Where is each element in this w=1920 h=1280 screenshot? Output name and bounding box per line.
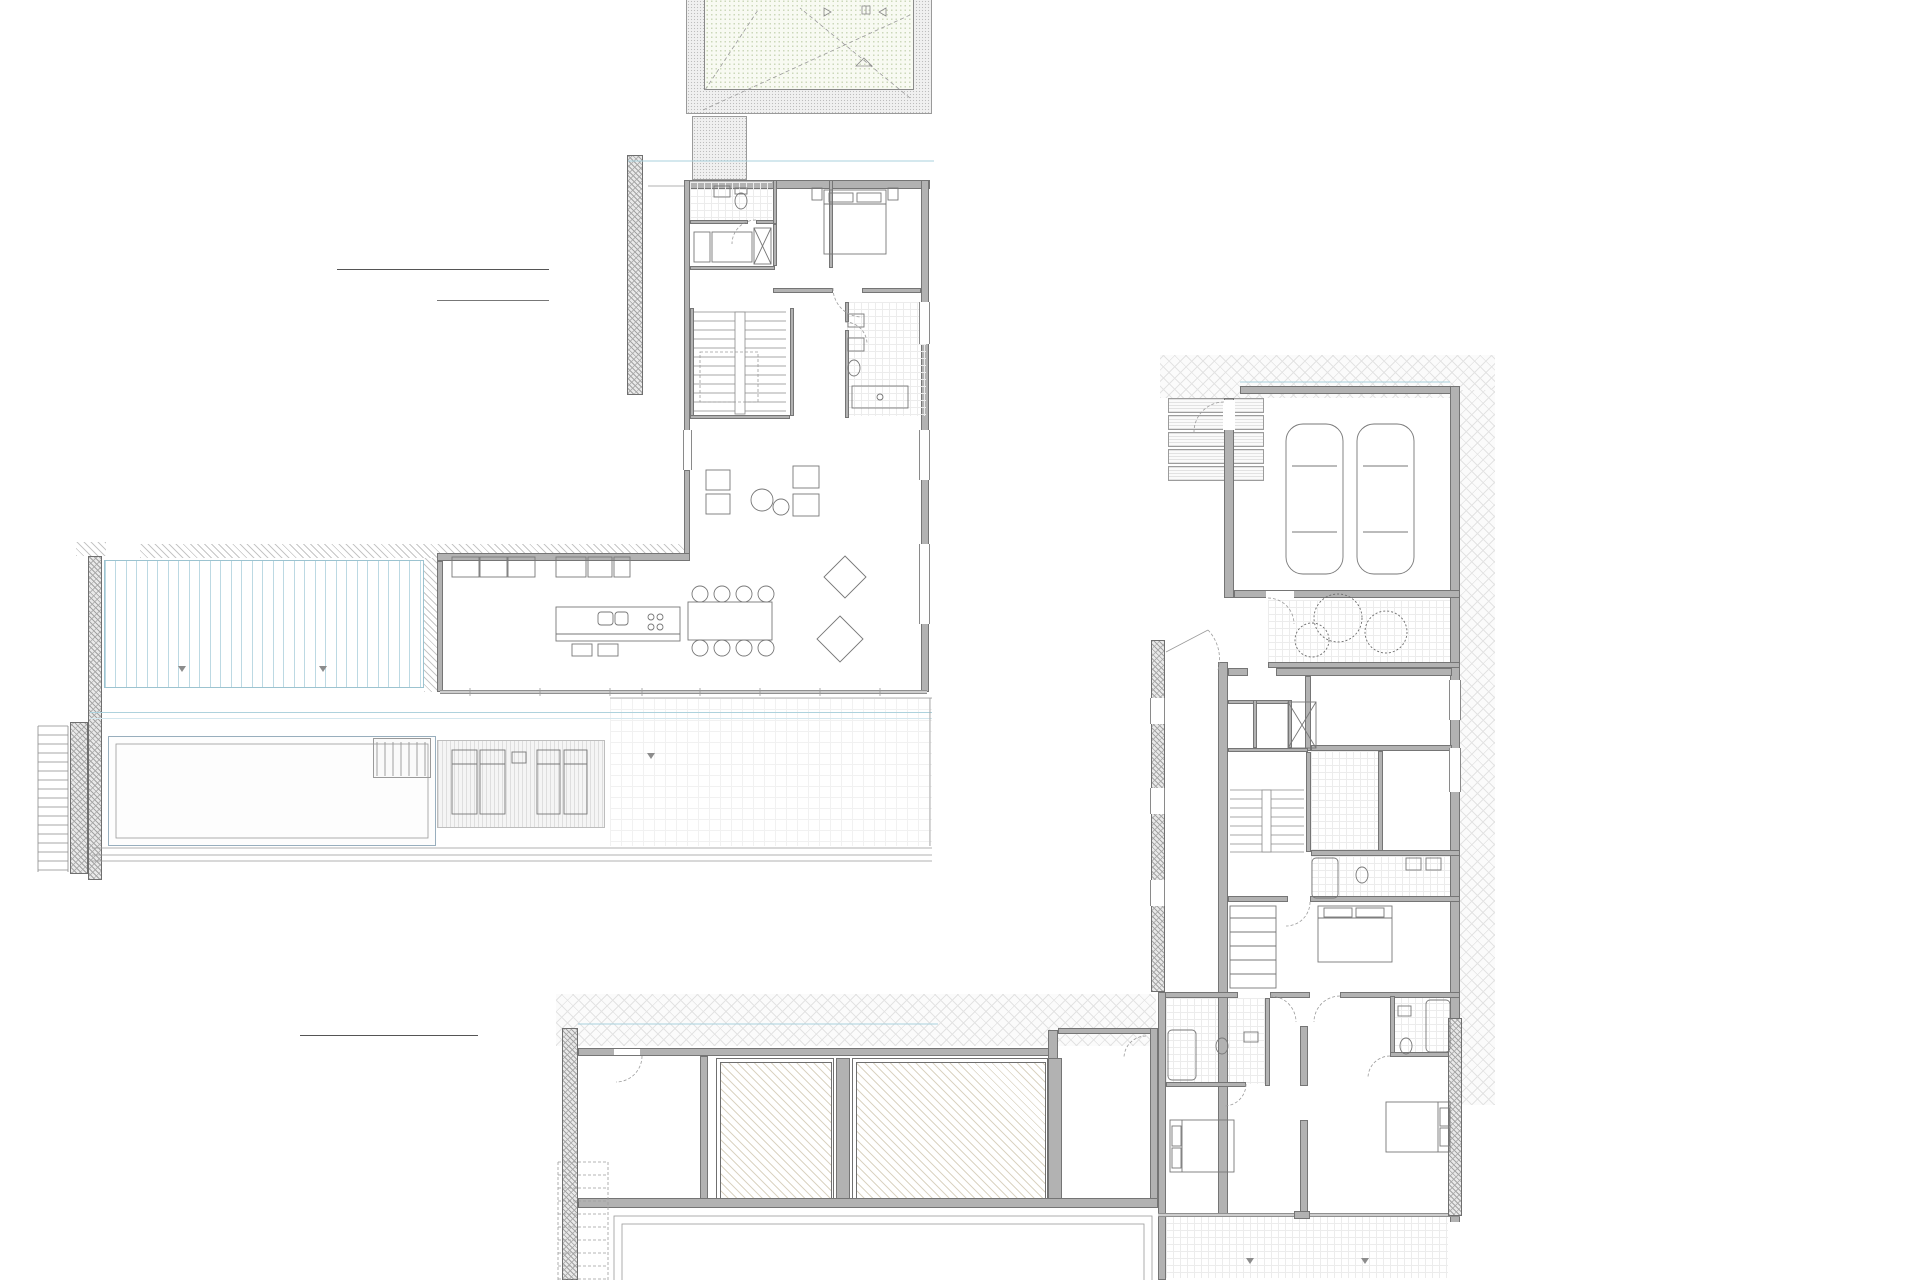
table-total-row (337, 304, 549, 322)
floor-plan-sheet (0, 0, 1920, 1280)
total-rule (437, 300, 549, 301)
table-header (337, 266, 549, 270)
areas-table-planta-alta (337, 266, 549, 322)
plan-linework (0, 0, 1920, 1280)
table-header (300, 1032, 478, 1036)
areas-table-planta-baja (300, 1032, 478, 1071)
